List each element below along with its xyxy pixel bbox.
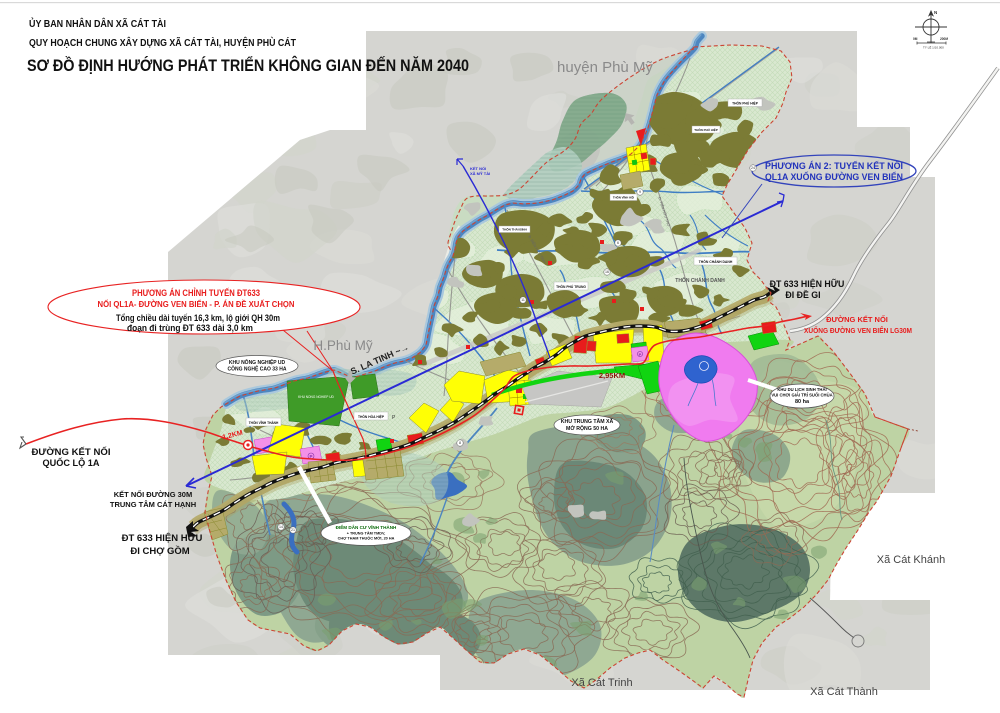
- svg-text:THÔN VĨNH THÀNH: THÔN VĨNH THÀNH: [249, 420, 279, 425]
- svg-text:đoạn đi trùng ĐT 633 dài 3,0 k: đoạn đi trùng ĐT 633 dài 3,0 km: [127, 323, 253, 333]
- svg-text:THÔN THÁI BÌNH: THÔN THÁI BÌNH: [502, 227, 527, 232]
- svg-text:ĐI ĐỀ GI: ĐI ĐỀ GI: [785, 290, 820, 300]
- svg-text:11: 11: [521, 298, 525, 302]
- svg-text:2,95KM: 2,95KM: [599, 371, 625, 380]
- svg-text:21: 21: [291, 528, 295, 532]
- svg-text:THÔN VĨNH HỘI: THÔN VĨNH HỘI: [613, 195, 634, 200]
- svg-text:THÔN CHÁNH DANH: THÔN CHÁNH DANH: [675, 276, 725, 284]
- svg-text:CHỢ THAM THUỘC MỚI, 20 HA: CHỢ THAM THUỘC MỚI, 20 HA: [338, 536, 395, 541]
- svg-text:ĐƯỜNG KẾT NỐI: ĐƯỜNG KẾT NỐI: [32, 446, 111, 458]
- svg-text:THÔN PHÚ HIỆP: THÔN PHÚ HIỆP: [732, 101, 759, 106]
- svg-text:THÔN CHÁNH DANH: THÔN CHÁNH DANH: [699, 259, 733, 264]
- svg-text:80 ha: 80 ha: [795, 399, 810, 405]
- svg-text:KHU TRUNG TÂM XÃ: KHU TRUNG TÂM XÃ: [561, 418, 614, 425]
- svg-text:ĐT 633 HIỆN HỮU: ĐT 633 HIỆN HỮU: [122, 532, 203, 544]
- svg-text:8: 8: [459, 441, 461, 445]
- svg-text:CÔNG NGHỆ CAO 33 HA: CÔNG NGHỆ CAO 33 HA: [228, 365, 287, 373]
- svg-text:N: N: [934, 10, 937, 15]
- svg-text:PHƯƠNG ÁN CHỈNH TUYẾN ĐT633: PHƯƠNG ÁN CHỈNH TUYẾN ĐT633: [132, 287, 260, 298]
- svg-text:NỐI QL1A- ĐƯỜNG VEN BIỂN - P.: NỐI QL1A- ĐƯỜNG VEN BIỂN - P. ÁN ĐỀ XUẤT…: [98, 298, 295, 309]
- svg-text:KHU DU LỊCH SINH THÁI: KHU DU LỊCH SINH THÁI: [777, 387, 826, 392]
- svg-text:6: 6: [617, 241, 619, 245]
- svg-text:ỦY BAN NHÂN DÂN XÃ CÁT TÀI: ỦY BAN NHÂN DÂN XÃ CÁT TÀI: [29, 17, 166, 30]
- svg-text:SƠ ĐỒ ĐỊNH HƯỚNG PHÁT TRIỂN KH: SƠ ĐỒ ĐỊNH HƯỚNG PHÁT TRIỂN KHÔNG GIAN Đ…: [27, 56, 469, 75]
- svg-text:ĐIỂM DÂN CƯ VĨNH THÀNH: ĐIỂM DÂN CƯ VĨNH THÀNH: [336, 524, 397, 530]
- svg-text:200M: 200M: [940, 37, 948, 41]
- svg-text:Xã Cát Trinh: Xã Cát Trinh: [571, 677, 632, 689]
- svg-text:THÔN PHÚ TRUNG: THÔN PHÚ TRUNG: [556, 284, 586, 289]
- svg-text:KHU NÔNG NGHIỆP UD: KHU NÔNG NGHIỆP UD: [229, 358, 286, 366]
- svg-text:THÔN PHÚ HIỆP: THÔN PHÚ HIỆP: [694, 127, 718, 132]
- svg-text:14: 14: [279, 525, 283, 529]
- svg-text:MỞ RỘNG 50 HA: MỞ RỘNG 50 HA: [566, 424, 608, 432]
- svg-text:+ TRUNG TÂM TMDV,: + TRUNG TÂM TMDV,: [347, 531, 386, 536]
- svg-text:9: 9: [639, 190, 641, 194]
- svg-text:TỶ LỆ 1/10.000: TỶ LỆ 1/10.000: [923, 45, 944, 50]
- svg-text:KẾT NỐI ĐƯỜNG 30M: KẾT NỐI ĐƯỜNG 30M: [114, 489, 192, 499]
- svg-text:0M: 0M: [913, 37, 918, 41]
- svg-text:Xã Cát Thành: Xã Cát Thành: [810, 686, 878, 698]
- svg-text:VUI CHƠI GIẢI TRÍ SUỐI CHÙA: VUI CHƠI GIẢI TRÍ SUỐI CHÙA: [771, 393, 832, 398]
- svg-text:24: 24: [751, 166, 755, 170]
- svg-text:16: 16: [605, 270, 609, 274]
- svg-text:QL1A XUỐNG ĐƯỜNG VEN BIỂN: QL1A XUỐNG ĐƯỜNG VEN BIỂN: [765, 171, 903, 182]
- svg-text:PHƯƠNG ÁN 2: TUYẾN KẾT NỐI: PHƯƠNG ÁN 2: TUYẾN KẾT NỐI: [765, 160, 903, 171]
- svg-text:ĐI CHỢ GỒM: ĐI CHỢ GỒM: [130, 545, 189, 557]
- svg-text:Xã Cát Khánh: Xã Cát Khánh: [877, 554, 946, 566]
- svg-text:ĐƯỜNG KẾT NỐI: ĐƯỜNG KẾT NỐI: [826, 314, 888, 324]
- svg-text:H.Phù Mỹ: H.Phù Mỹ: [313, 338, 373, 353]
- svg-text:QUY HOẠCH CHUNG XÂY DỰNG XÃ CÁ: QUY HOẠCH CHUNG XÂY DỰNG XÃ CÁT TÀI, HUY…: [29, 36, 296, 49]
- svg-text:XUỐNG ĐƯỜNG VEN BIỂN LG30M: XUỐNG ĐƯỜNG VEN BIỂN LG30M: [804, 325, 912, 335]
- svg-text:KHU NONG NGHIEP UD: KHU NONG NGHIEP UD: [298, 395, 334, 399]
- svg-text:P: P: [639, 352, 642, 357]
- svg-text:huyện Phù Mỹ: huyện Phù Mỹ: [557, 59, 653, 76]
- svg-text:ĐT 633 HIỆN HỮU: ĐT 633 HIỆN HỮU: [770, 278, 845, 289]
- svg-text:Tổng chiều dài tuyến 16,3 km,: Tổng chiều dài tuyến 16,3 km, lộ giới QH…: [116, 313, 280, 323]
- svg-text:THÔN HÒA HIỆP: THÔN HÒA HIỆP: [358, 414, 385, 419]
- svg-text:XÃ MỸ TÀI: XÃ MỸ TÀI: [470, 171, 490, 176]
- svg-text:TRUNG TÂM CÁT HẠNH: TRUNG TÂM CÁT HẠNH: [110, 500, 196, 509]
- svg-text:QUỐC LỘ 1A: QUỐC LỘ 1A: [43, 457, 100, 469]
